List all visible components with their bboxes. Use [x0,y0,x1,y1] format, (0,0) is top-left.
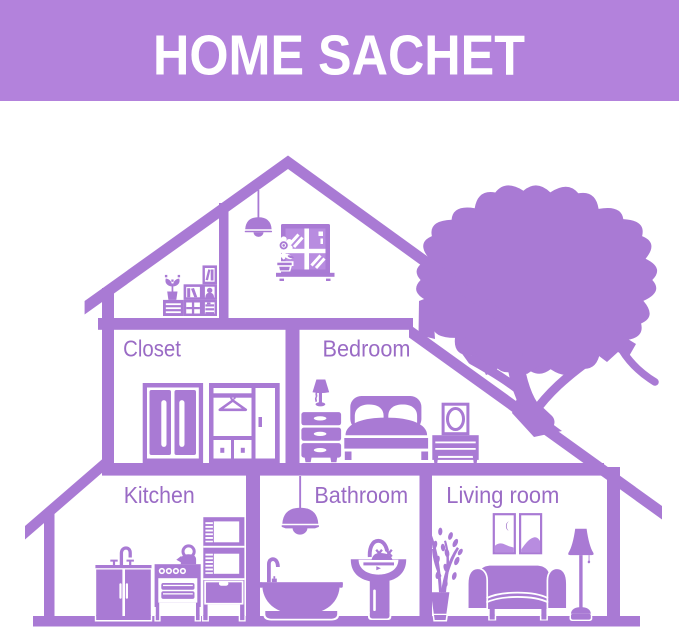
svg-text:Closet: Closet [123,336,181,362]
svg-text:Kitchen: Kitchen [124,482,195,508]
svg-text:Living room: Living room [446,482,559,508]
svg-text:Bedroom: Bedroom [323,336,411,362]
svg-text:Bathroom: Bathroom [314,482,408,508]
svg-text:HOME SACHET: HOME SACHET [153,24,525,88]
